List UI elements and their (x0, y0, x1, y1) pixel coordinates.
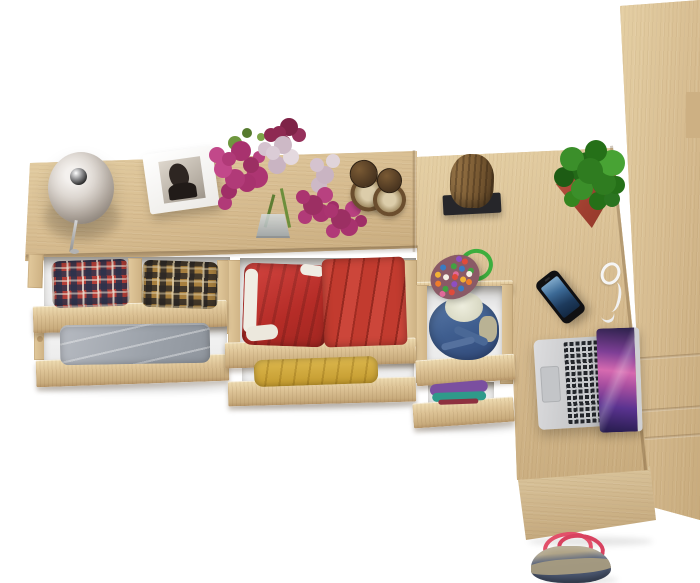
folded-clothes-small (430, 379, 493, 405)
red-folded-stack (321, 257, 407, 348)
yellow-folded-shirt (254, 356, 379, 387)
drawer-knob (37, 336, 43, 342)
laptop-trackpad (540, 366, 561, 403)
gray-trousers (60, 323, 211, 366)
flower-cluster-magenta (222, 152, 236, 166)
bag-trim-wave (531, 556, 611, 577)
bag-body (531, 546, 611, 583)
tote-bag (531, 528, 619, 583)
flower-cluster-lilac (310, 158, 324, 172)
lamp-foot (70, 249, 79, 254)
flower-cluster-magenta (296, 190, 310, 204)
flower-cluster-darkred (272, 126, 286, 140)
table-lamp (48, 152, 114, 224)
pompom-dots (451, 273, 459, 281)
plaid-shirt-red (51, 259, 130, 309)
wardrobe-notch (686, 92, 700, 138)
screen-sheen (596, 327, 638, 432)
laptop-screen (596, 327, 643, 432)
dresser-desk-seam (412, 150, 416, 252)
furniture-top-view-scene (0, 0, 700, 583)
flower-cluster-lilac (266, 146, 280, 160)
vase (256, 214, 290, 238)
flower-greens (228, 136, 242, 150)
log-stool (449, 153, 495, 209)
drawer-side-rail (27, 254, 43, 289)
lamp-hub (70, 168, 87, 185)
shorts-waistband (243, 269, 258, 333)
denim-jacket (427, 288, 503, 363)
plaid-shirt-brown (141, 260, 219, 310)
potted-plant (577, 158, 603, 184)
red-shorts (242, 263, 329, 348)
earphones (598, 258, 624, 322)
photo (158, 156, 205, 203)
hourglass (372, 167, 403, 214)
flower-cluster-magenta (324, 204, 338, 218)
flower-bouquet (200, 112, 350, 242)
